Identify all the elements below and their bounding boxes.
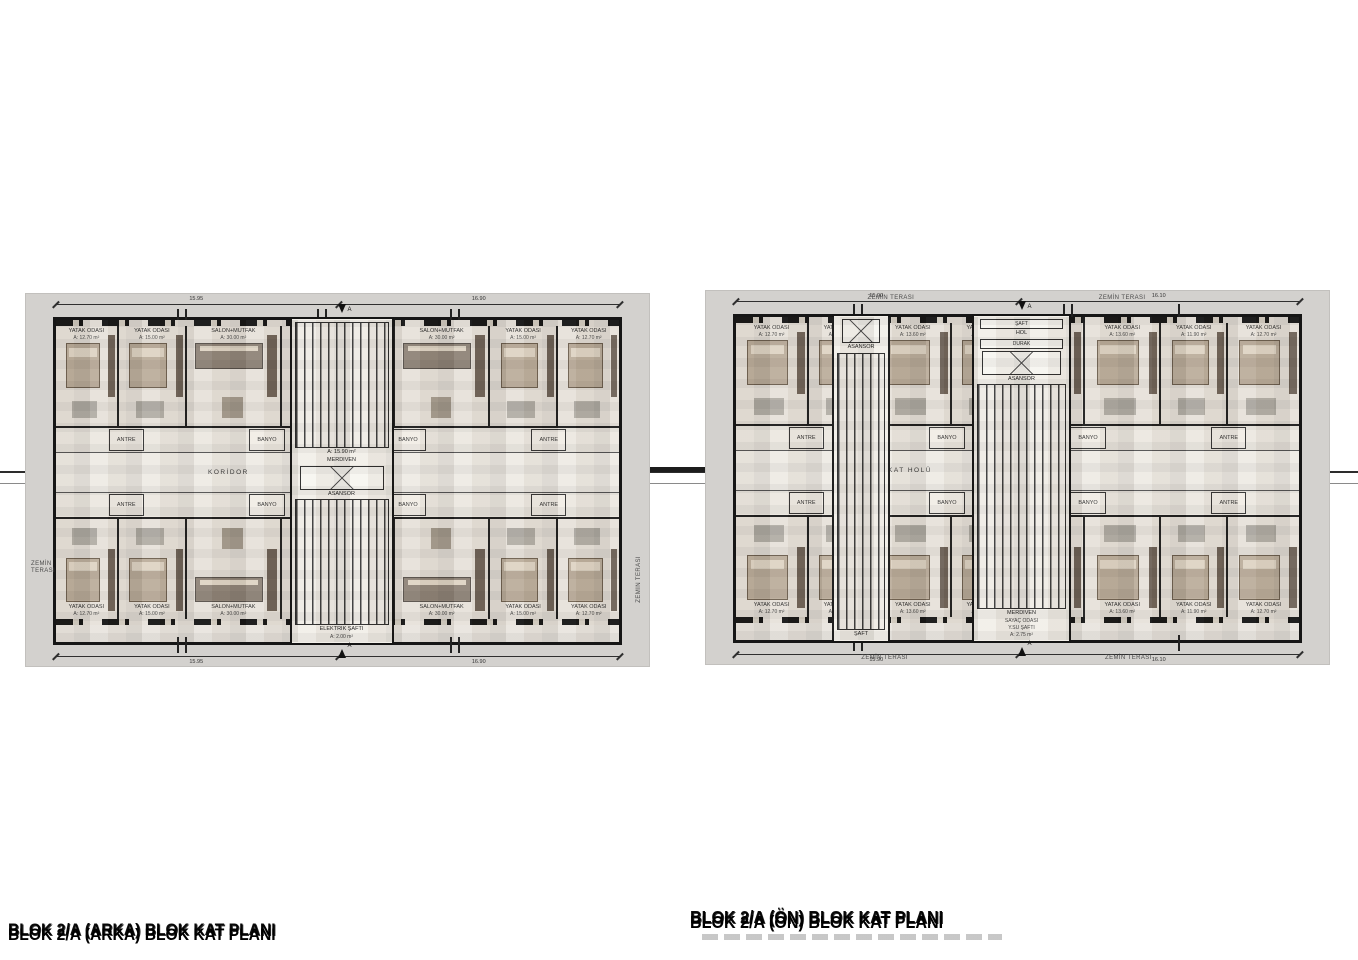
grid-tick bbox=[450, 637, 452, 653]
drawing-title-left: BLOK 2/A (ARKA) BLOK KAT PLANI bbox=[8, 925, 276, 945]
bed-furniture bbox=[195, 343, 264, 368]
section-letter: A bbox=[348, 307, 352, 313]
service-room-antre: ANTRE bbox=[531, 429, 566, 451]
room-label: YATAK ODASI bbox=[736, 325, 807, 331]
wardrobe-furniture bbox=[108, 335, 115, 397]
room-label: YATAK ODASI bbox=[490, 604, 556, 610]
elevator-label: ASANSÖR bbox=[294, 491, 390, 499]
grid-tick bbox=[458, 637, 460, 653]
wardrobe-furniture bbox=[611, 335, 618, 397]
room: SALON+MUTFAKA: 30.00 m² bbox=[395, 519, 489, 625]
wardrobe-furniture bbox=[267, 335, 277, 397]
wardrobe-furniture bbox=[267, 549, 277, 611]
service-room-antre: ANTRE bbox=[109, 494, 144, 516]
stair-area-label: A: 15.90 m² bbox=[294, 449, 390, 457]
wardrobe-furniture bbox=[1217, 547, 1224, 609]
shaft-box: ŞAFT bbox=[980, 319, 1062, 329]
room-label: YATAK ODASI bbox=[1085, 325, 1159, 331]
core-area-label: A: 2.75 m² bbox=[976, 632, 1066, 639]
room-area-label: A: 12.70 m² bbox=[56, 335, 117, 341]
rug-furniture bbox=[574, 528, 599, 545]
shaft-area-label: A: 2.00 m² bbox=[294, 634, 390, 641]
room-area-label: A: 13.60 m² bbox=[1085, 609, 1159, 615]
floor-plan-left: 15.95 16.90 A A YATAK ODASIA: 12.70 m²YA… bbox=[25, 293, 650, 667]
wardrobe-furniture bbox=[1074, 547, 1081, 609]
section-letter: A bbox=[1028, 641, 1032, 647]
terrace-label: ZEMİN TERASI bbox=[1099, 295, 1146, 301]
terrace-label: ZEMİN TERASI bbox=[1105, 655, 1152, 661]
bed-furniture bbox=[403, 343, 472, 368]
drawing-sheet: 15.95 16.90 A A YATAK ODASIA: 12.70 m²YA… bbox=[0, 0, 1358, 960]
room-label: YATAK ODASI bbox=[558, 604, 619, 610]
service-room-antre: ANTRE bbox=[109, 429, 144, 451]
title-underline bbox=[702, 934, 1002, 940]
terrace-label: ZEMİN TERASI bbox=[31, 561, 65, 575]
grid-tick bbox=[185, 637, 187, 653]
room-area-label: A: 15.00 m² bbox=[490, 335, 556, 341]
room-label: SALON+MUTFAK bbox=[187, 328, 279, 334]
bed-furniture bbox=[66, 343, 101, 388]
rug-furniture bbox=[1246, 398, 1276, 415]
elevator bbox=[842, 319, 881, 343]
dim-tick bbox=[52, 653, 59, 660]
wardrobe-furniture bbox=[547, 335, 554, 397]
room: YATAK ODASIA: 12.70 m² bbox=[736, 317, 809, 424]
service-room-banyo: BANYO bbox=[929, 427, 964, 449]
bed-furniture bbox=[888, 340, 930, 385]
room-area-label: A: 12.70 m² bbox=[558, 611, 619, 617]
room-area-label: A: 30.00 m² bbox=[187, 335, 279, 341]
bed-furniture bbox=[129, 343, 167, 388]
room-area-label: A: 30.00 m² bbox=[395, 335, 487, 341]
section-marker-icon: A bbox=[338, 304, 346, 313]
rug-furniture bbox=[1104, 398, 1135, 415]
dimension-value: 16.90 bbox=[472, 659, 486, 665]
rug-furniture bbox=[72, 528, 97, 545]
room-area-label: A: 12.70 m² bbox=[1228, 332, 1299, 338]
rug-furniture bbox=[222, 397, 242, 418]
bed-furniture bbox=[1172, 555, 1209, 600]
rug-furniture bbox=[431, 397, 451, 418]
room: YATAK ODASIA: 11.90 m² bbox=[1161, 517, 1228, 624]
bed-furniture bbox=[403, 577, 472, 602]
bed-furniture bbox=[1172, 340, 1209, 385]
stair-core: A: 15.90 m² MERDİVEN ASANSÖR ELEKTRİK ŞA… bbox=[290, 317, 394, 645]
water-shaft-label: Y.SU ŞAFTI bbox=[976, 625, 1066, 632]
wardrobe-furniture bbox=[1289, 332, 1297, 394]
rug-furniture bbox=[754, 525, 784, 542]
rug-furniture bbox=[136, 401, 164, 418]
building-outline: A A YATAK ODASIA: 12.70 m²YATAK ODASIA: … bbox=[733, 314, 1302, 643]
bed-furniture bbox=[888, 555, 930, 600]
room: YATAK ODASIA: 15.00 m² bbox=[490, 320, 558, 426]
room: YATAK ODASIA: 12.70 m² bbox=[558, 519, 619, 625]
service-room-antre: ANTRE bbox=[789, 492, 824, 514]
room-label: YATAK ODASI bbox=[119, 328, 185, 334]
rug-furniture bbox=[1104, 525, 1135, 542]
bed-furniture bbox=[747, 555, 787, 600]
room-label: YATAK ODASI bbox=[119, 604, 185, 610]
bed-furniture bbox=[129, 558, 167, 603]
meter-room-label: SAYAÇ ODASI bbox=[976, 618, 1066, 625]
room-area-label: A: 30.00 m² bbox=[187, 611, 279, 617]
grid-tick bbox=[1178, 635, 1180, 651]
room-label: YATAK ODASI bbox=[56, 328, 117, 334]
room-area-label: A: 12.70 m² bbox=[1228, 609, 1299, 615]
room: YATAK ODASIA: 12.70 m² bbox=[1228, 317, 1299, 424]
section-letter: A bbox=[348, 643, 352, 649]
elevator-label: ASANSÖR bbox=[836, 344, 887, 352]
room: YATAK ODASIA: 15.00 m² bbox=[490, 519, 558, 625]
room: YATAK ODASIA: 12.70 m² bbox=[56, 519, 119, 625]
wardrobe-furniture bbox=[475, 549, 485, 611]
room-label: YATAK ODASI bbox=[1228, 602, 1299, 608]
wardrobe-furniture bbox=[940, 332, 948, 394]
stair-label: MERDİVEN bbox=[976, 610, 1066, 618]
elevator-label: ASANSÖR bbox=[976, 376, 1066, 384]
elevator bbox=[300, 466, 384, 490]
dim-tick bbox=[732, 298, 739, 305]
bed-furniture bbox=[1097, 340, 1139, 385]
wardrobe-furniture bbox=[940, 547, 948, 609]
wardrobe-furniture bbox=[108, 549, 115, 611]
room: SALON+MUTFAKA: 30.00 m² bbox=[187, 519, 281, 625]
building-outline: A A YATAK ODASIA: 12.70 m²YATAK ODASIA: … bbox=[53, 317, 622, 645]
room: YATAK ODASIA: 15.00 m² bbox=[119, 320, 187, 426]
terrace-label: ZEMİN TERASI bbox=[868, 295, 915, 301]
staircase bbox=[295, 499, 389, 625]
service-room-banyo: BANYO bbox=[390, 494, 425, 516]
section-marker-icon: A bbox=[1018, 301, 1026, 310]
bed-furniture bbox=[501, 558, 539, 603]
service-room-antre: ANTRE bbox=[1211, 427, 1246, 449]
dim-tick bbox=[616, 301, 623, 308]
service-room-banyo: BANYO bbox=[249, 429, 284, 451]
service-room-banyo: BANYO bbox=[1070, 427, 1105, 449]
staircase bbox=[295, 322, 389, 448]
room-label: SALON+MUTFAK bbox=[395, 604, 487, 610]
stair-label: MERDİVEN bbox=[294, 457, 390, 465]
dim-tick bbox=[52, 301, 59, 308]
stop-box: DURAK bbox=[980, 339, 1062, 349]
wardrobe-furniture bbox=[176, 335, 183, 397]
rug-furniture bbox=[136, 528, 164, 545]
wardrobe-furniture bbox=[797, 332, 805, 394]
wardrobe-furniture bbox=[1074, 332, 1081, 394]
room-label: YATAK ODASI bbox=[490, 328, 556, 334]
wardrobe-furniture bbox=[797, 547, 805, 609]
service-room-antre: ANTRE bbox=[531, 494, 566, 516]
room: YATAK ODASIA: 12.70 m² bbox=[56, 320, 119, 426]
rug-furniture bbox=[1178, 525, 1205, 542]
bed-furniture bbox=[66, 558, 101, 603]
room-area-label: A: 15.00 m² bbox=[119, 611, 185, 617]
dimension-value: 16.10 bbox=[1152, 293, 1166, 299]
shaft bbox=[837, 353, 886, 631]
rug-furniture bbox=[574, 401, 599, 418]
wardrobe-furniture bbox=[475, 335, 485, 397]
bed-furniture bbox=[568, 558, 603, 603]
terrace-label: ZEMİN TERASI bbox=[861, 655, 908, 661]
dim-tick bbox=[1296, 298, 1303, 305]
service-room-antre: ANTRE bbox=[789, 427, 824, 449]
dimension-value: 16.90 bbox=[472, 296, 486, 302]
room-label: YATAK ODASI bbox=[1085, 602, 1159, 608]
room-area-label: A: 11.90 m² bbox=[1161, 332, 1226, 338]
wardrobe-furniture bbox=[1149, 547, 1157, 609]
bed-furniture bbox=[1239, 555, 1279, 600]
stair-core: ŞAFT HOL DURAK ASANSÖR MERDİVEN SAYAÇ OD… bbox=[972, 314, 1070, 643]
staircase bbox=[977, 384, 1065, 609]
room-area-label: A: 30.00 m² bbox=[395, 611, 487, 617]
rug-furniture bbox=[431, 528, 451, 549]
room-area-label: A: 12.70 m² bbox=[736, 609, 807, 615]
room-label: YATAK ODASI bbox=[558, 328, 619, 334]
rug-furniture bbox=[507, 528, 535, 545]
floor-plan-right: 15.90 16.10 ZEMİN TERASI ZEMİN TERASI ZE… bbox=[705, 290, 1330, 665]
room: YATAK ODASIA: 12.70 m² bbox=[736, 517, 809, 624]
dim-tick bbox=[732, 651, 739, 658]
rug-furniture bbox=[895, 398, 926, 415]
section-letter: A bbox=[1028, 304, 1032, 310]
wardrobe-furniture bbox=[1149, 332, 1157, 394]
section-marker-icon: A bbox=[1018, 647, 1026, 656]
room: SALON+MUTFAKA: 30.00 m² bbox=[187, 320, 281, 426]
section-marker-icon: A bbox=[338, 649, 346, 658]
service-room-banyo: BANYO bbox=[249, 494, 284, 516]
rug-furniture bbox=[1178, 398, 1205, 415]
elevator-core: ASANSÖR ŞAFT bbox=[832, 314, 891, 643]
corridor-label: KORİDOR bbox=[208, 469, 249, 476]
room: YATAK ODASIA: 13.60 m² bbox=[1085, 317, 1161, 424]
service-room-antre: ANTRE bbox=[1211, 492, 1246, 514]
dimension-value: 15.95 bbox=[189, 296, 203, 302]
room: YATAK ODASIA: 12.70 m² bbox=[1228, 517, 1299, 624]
bed-furniture bbox=[1097, 555, 1139, 600]
rug-furniture bbox=[754, 398, 784, 415]
rug-furniture bbox=[1246, 525, 1276, 542]
hall-label: HOL bbox=[976, 330, 1066, 338]
rug-furniture bbox=[222, 528, 242, 549]
dim-tick bbox=[1296, 651, 1303, 658]
wardrobe-furniture bbox=[1289, 547, 1297, 609]
room-label: YATAK ODASI bbox=[1161, 602, 1226, 608]
room: YATAK ODASIA: 15.00 m² bbox=[119, 519, 187, 625]
rug-furniture bbox=[507, 401, 535, 418]
wardrobe-furniture bbox=[611, 549, 618, 611]
drawing-title-right: BLOK 2/A (ÖN) BLOK KAT PLANI bbox=[690, 912, 943, 933]
elevator bbox=[982, 351, 1060, 375]
corridor-label: KAT HOLÜ bbox=[888, 467, 932, 474]
room-label: SALON+MUTFAK bbox=[187, 604, 279, 610]
dimension-value: 16.10 bbox=[1152, 657, 1166, 663]
room-area-label: A: 15.00 m² bbox=[119, 335, 185, 341]
wardrobe-furniture bbox=[1217, 332, 1224, 394]
terrace-label: ZEMİN TERASI bbox=[636, 556, 642, 603]
wardrobe-furniture bbox=[176, 549, 183, 611]
room-area-label: A: 12.70 m² bbox=[736, 332, 807, 338]
grid-tick bbox=[177, 637, 179, 653]
dim-tick bbox=[616, 653, 623, 660]
room-label: YATAK ODASI bbox=[736, 602, 807, 608]
room: YATAK ODASIA: 11.90 m² bbox=[1161, 317, 1228, 424]
room-area-label: A: 15.00 m² bbox=[490, 611, 556, 617]
room-label: SALON+MUTFAK bbox=[395, 328, 487, 334]
shaft-label: ŞAFT bbox=[836, 631, 887, 639]
rug-furniture bbox=[895, 525, 926, 542]
service-room-banyo: BANYO bbox=[1070, 492, 1105, 514]
room-label: YATAK ODASI bbox=[1228, 325, 1299, 331]
room-label: YATAK ODASI bbox=[56, 604, 117, 610]
room-label: YATAK ODASI bbox=[1161, 325, 1226, 331]
room-area-label: A: 13.60 m² bbox=[1085, 332, 1159, 338]
service-room-banyo: BANYO bbox=[390, 429, 425, 451]
dimension-value: 15.95 bbox=[189, 659, 203, 665]
bed-furniture bbox=[195, 577, 264, 602]
bed-furniture bbox=[501, 343, 539, 388]
service-room-banyo: BANYO bbox=[929, 492, 964, 514]
wardrobe-furniture bbox=[547, 549, 554, 611]
room-area-label: A: 12.70 m² bbox=[558, 335, 619, 341]
room: SALON+MUTFAKA: 30.00 m² bbox=[395, 320, 489, 426]
bed-furniture bbox=[568, 343, 603, 388]
room: YATAK ODASIA: 13.60 m² bbox=[1085, 517, 1161, 624]
bed-furniture bbox=[747, 340, 787, 385]
room: YATAK ODASIA: 12.70 m² bbox=[558, 320, 619, 426]
room-area-label: A: 12.70 m² bbox=[56, 611, 117, 617]
rug-furniture bbox=[72, 401, 97, 418]
shaft-label: ELEKTRİK ŞAFTI bbox=[294, 626, 390, 634]
room-area-label: A: 11.90 m² bbox=[1161, 609, 1226, 615]
bed-furniture bbox=[1239, 340, 1279, 385]
